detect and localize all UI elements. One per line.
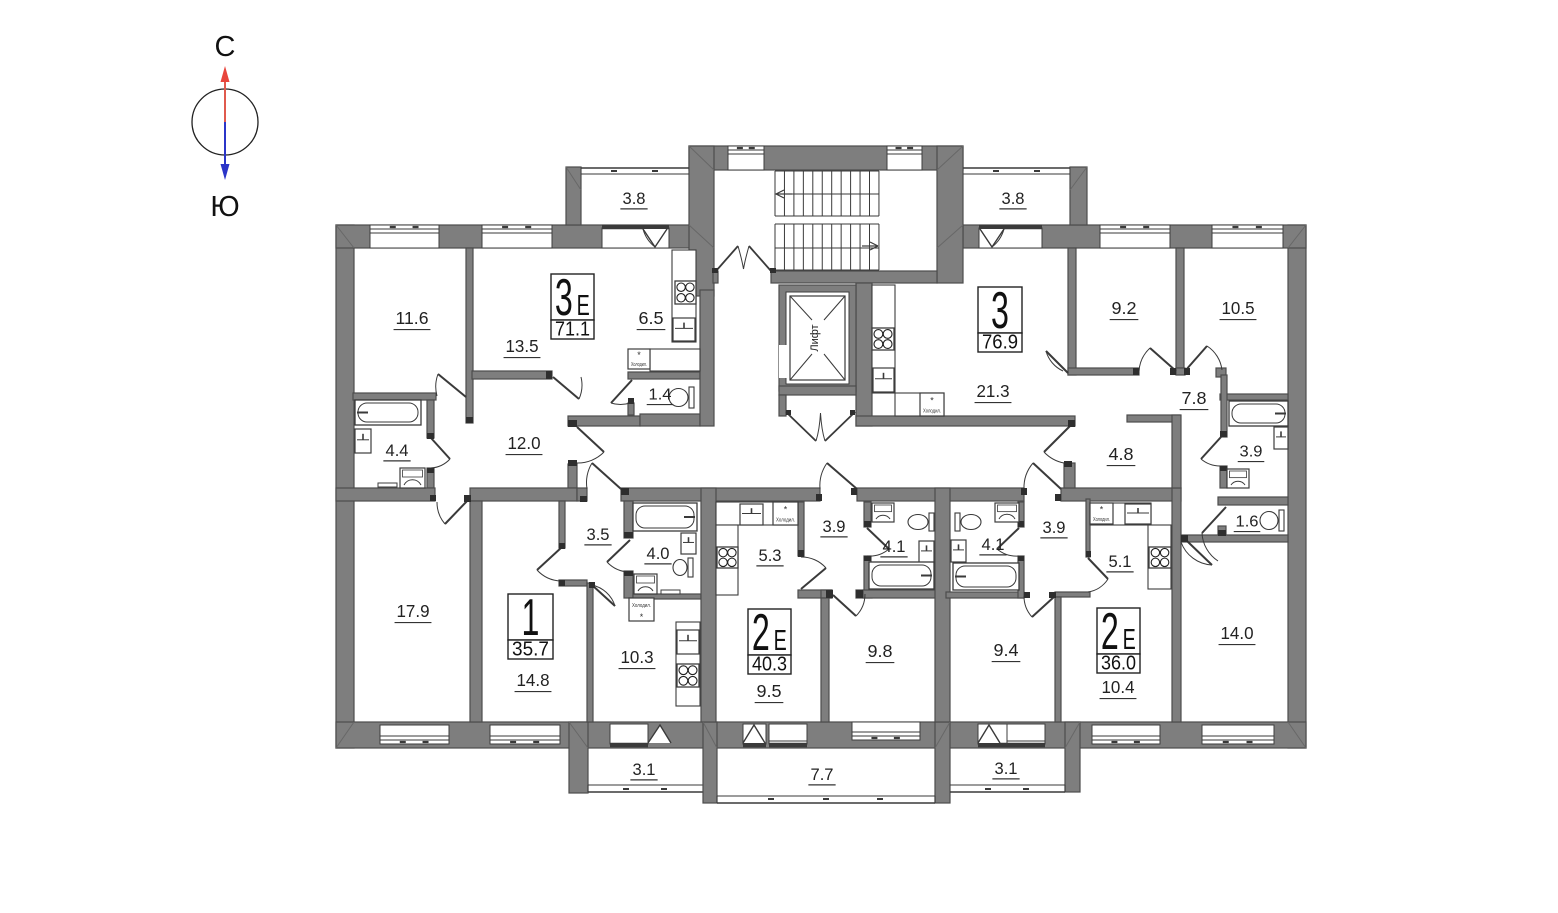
svg-text:3.8: 3.8 xyxy=(1002,190,1025,208)
svg-text:12.0: 12.0 xyxy=(508,433,541,453)
svg-text:Холодил.: Холодил. xyxy=(632,603,651,609)
svg-text:9.2: 9.2 xyxy=(1112,298,1137,318)
svg-text:4.4: 4.4 xyxy=(386,442,409,460)
svg-text:36.0: 36.0 xyxy=(1101,653,1136,675)
svg-text:7.8: 7.8 xyxy=(1182,388,1207,408)
svg-text:1.6: 1.6 xyxy=(1236,514,1259,531)
svg-text:*: * xyxy=(930,395,934,405)
svg-text:*: * xyxy=(640,612,644,622)
svg-text:14.0: 14.0 xyxy=(1221,623,1254,643)
svg-text:5.1: 5.1 xyxy=(1109,553,1132,571)
svg-text:1.4: 1.4 xyxy=(649,387,672,404)
svg-text:3.9: 3.9 xyxy=(1240,444,1263,461)
svg-text:4.1: 4.1 xyxy=(982,536,1005,554)
svg-text:13.5: 13.5 xyxy=(506,336,539,356)
svg-text:3.9: 3.9 xyxy=(1043,519,1066,537)
svg-text:40.3: 40.3 xyxy=(752,654,787,676)
svg-text:17.9: 17.9 xyxy=(397,601,430,621)
svg-text:Лифт: Лифт xyxy=(809,324,821,351)
svg-text:С: С xyxy=(215,31,236,63)
svg-text:5.3: 5.3 xyxy=(759,547,782,565)
svg-text:9.4: 9.4 xyxy=(994,640,1019,660)
svg-text:3.8: 3.8 xyxy=(623,190,646,208)
svg-text:3.5: 3.5 xyxy=(587,526,610,544)
svg-text:*: * xyxy=(1100,504,1104,514)
svg-text:6.5: 6.5 xyxy=(639,308,664,328)
svg-text:Холодил.: Холодил. xyxy=(923,409,941,415)
svg-text:Е: Е xyxy=(577,290,590,322)
svg-text:4.1: 4.1 xyxy=(883,538,906,556)
svg-text:14.8: 14.8 xyxy=(517,670,550,690)
svg-text:Е: Е xyxy=(1123,624,1136,656)
svg-text:9.8: 9.8 xyxy=(868,641,893,661)
svg-text:7.7: 7.7 xyxy=(811,766,834,784)
svg-text:9.5: 9.5 xyxy=(757,681,782,701)
svg-text:*: * xyxy=(784,504,788,514)
svg-text:35.7: 35.7 xyxy=(512,639,549,661)
svg-text:76.9: 76.9 xyxy=(982,332,1018,354)
svg-text:11.6: 11.6 xyxy=(396,308,429,328)
svg-text:4.8: 4.8 xyxy=(1109,444,1134,464)
svg-text:10.3: 10.3 xyxy=(621,647,654,667)
svg-text:Холодил.: Холодил. xyxy=(1093,517,1110,523)
svg-text:21.3: 21.3 xyxy=(977,381,1010,401)
svg-text:10.5: 10.5 xyxy=(1222,298,1255,318)
svg-text:10.4: 10.4 xyxy=(1102,677,1135,697)
svg-text:3.9: 3.9 xyxy=(823,518,846,536)
svg-text:*: * xyxy=(637,350,641,360)
svg-text:Холодил.: Холодил. xyxy=(776,518,795,524)
svg-text:Ю: Ю xyxy=(210,191,239,223)
svg-text:4.0: 4.0 xyxy=(647,545,670,563)
svg-text:71.1: 71.1 xyxy=(555,319,590,341)
svg-text:3.1: 3.1 xyxy=(633,761,656,779)
svg-text:Холодил.: Холодил. xyxy=(631,362,647,368)
svg-text:3.1: 3.1 xyxy=(995,760,1018,778)
svg-text:Е: Е xyxy=(774,625,787,657)
